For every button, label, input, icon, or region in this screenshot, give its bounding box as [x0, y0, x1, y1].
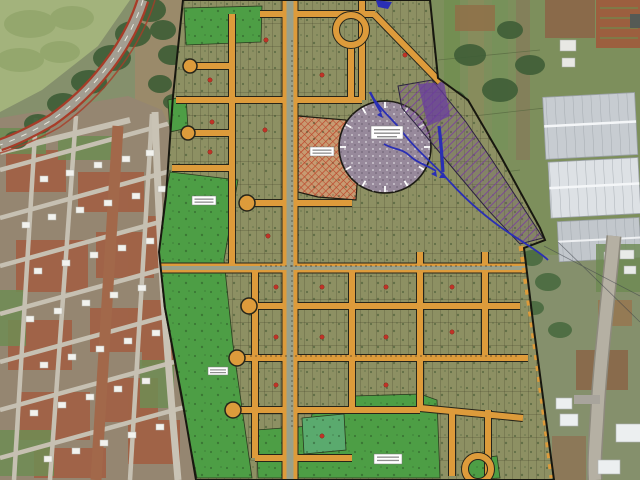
block-number-dot — [274, 335, 278, 339]
block-number-dot — [320, 335, 324, 339]
block-number-dot — [274, 383, 278, 387]
label-text-line — [377, 136, 397, 137]
green-area-label-south — [374, 454, 402, 464]
tree — [497, 21, 523, 39]
house-roof — [40, 362, 48, 368]
shed-roof — [560, 414, 578, 426]
house-roof — [66, 170, 74, 176]
house-roof — [34, 268, 42, 274]
shed-roof — [560, 40, 576, 51]
house-roof — [620, 250, 634, 259]
block-number-dot — [264, 38, 268, 42]
tree — [515, 55, 545, 75]
house-roof — [58, 402, 66, 408]
house-roof — [40, 176, 48, 182]
house-roof — [124, 338, 132, 344]
label-text-line — [313, 153, 332, 154]
commercial-area-label — [310, 147, 334, 156]
block-number-dot — [320, 73, 324, 77]
block-number-dot — [210, 120, 214, 124]
label-text-line — [374, 129, 400, 130]
block-number-dot — [263, 128, 267, 132]
label-box — [374, 454, 402, 464]
house-roof — [132, 193, 140, 199]
block-number-dot — [450, 330, 454, 334]
house-roof — [104, 200, 112, 206]
block-number-dot — [208, 78, 212, 82]
dirt-patch — [552, 436, 586, 480]
label-box — [192, 196, 216, 205]
house-roof — [146, 238, 154, 244]
house-roof — [624, 266, 636, 274]
label-box — [310, 147, 334, 156]
house-roof — [44, 456, 52, 462]
house-roof — [72, 448, 80, 454]
green-strip-label — [208, 367, 228, 375]
culdesac-bulb — [229, 350, 245, 366]
shed-roof — [598, 460, 620, 474]
tree — [150, 20, 176, 40]
house-roof — [128, 432, 136, 438]
block-number-dot — [274, 285, 278, 289]
block-number-dot — [450, 285, 454, 289]
screenshot-root: Satellite aerial photo with residential … — [0, 0, 640, 480]
label-box — [208, 367, 228, 375]
block-number-dot — [320, 434, 324, 438]
house-roof — [156, 424, 164, 430]
house-roof — [26, 316, 34, 322]
label-text-line — [195, 199, 214, 200]
house-roof — [118, 245, 126, 251]
culdesac-bulb — [241, 298, 257, 314]
label-text-line — [210, 369, 226, 370]
house-roof — [114, 386, 122, 392]
green-area-label-west — [192, 196, 216, 205]
house-roof — [110, 292, 118, 298]
house-roof — [22, 222, 30, 228]
culdesac-bulb — [239, 195, 255, 211]
block-number-dot — [384, 285, 388, 289]
shed-roof — [556, 398, 572, 409]
house-roof — [82, 300, 90, 306]
house-roof — [146, 150, 154, 156]
culdesac-bulb — [183, 59, 197, 73]
house-roof — [30, 410, 38, 416]
house-roof — [90, 252, 98, 258]
culdesac-bulb — [181, 126, 195, 140]
house-roof — [54, 308, 62, 314]
warehouse-small — [616, 424, 640, 442]
house-roof — [142, 378, 150, 384]
field-patch — [40, 41, 80, 63]
plaza-label — [371, 126, 403, 139]
tree — [482, 78, 518, 102]
house-roof — [68, 354, 76, 360]
field-patch — [4, 10, 56, 38]
label-text-line — [210, 372, 226, 373]
label-text-line — [313, 150, 332, 151]
tilled-patch — [455, 5, 495, 31]
aerial-map: Satellite aerial photo with residential … — [0, 0, 640, 480]
field-patch — [50, 6, 94, 30]
house-roof — [62, 260, 70, 266]
dark-shed — [630, 14, 640, 28]
block-number-dot — [320, 285, 324, 289]
house-roof — [138, 285, 146, 291]
house-roof — [100, 440, 108, 446]
green-patch — [0, 430, 54, 476]
house-roof — [94, 162, 102, 168]
shed-roof — [562, 58, 575, 67]
tree — [535, 273, 561, 291]
house-roof — [86, 394, 94, 400]
block-number-dot — [384, 383, 388, 387]
block-number-dot — [403, 53, 407, 57]
label-text-line — [374, 133, 400, 134]
house-roof — [48, 214, 56, 220]
label-text-line — [195, 202, 214, 203]
house-roof — [76, 207, 84, 213]
label-text-line — [377, 457, 399, 458]
house-roof — [152, 330, 160, 336]
tree — [148, 75, 172, 93]
block-number-dot — [266, 234, 270, 238]
house-roof — [122, 156, 130, 162]
tree — [454, 44, 486, 66]
house-roof — [158, 186, 166, 192]
label-text-line — [377, 460, 399, 461]
house-roof — [96, 346, 104, 352]
tree — [548, 322, 572, 338]
block-number-dot — [384, 335, 388, 339]
tilled-patch — [545, 0, 595, 38]
culdesac-bulb — [225, 402, 241, 418]
parking-row — [574, 395, 600, 404]
block-number-dot — [208, 150, 212, 154]
